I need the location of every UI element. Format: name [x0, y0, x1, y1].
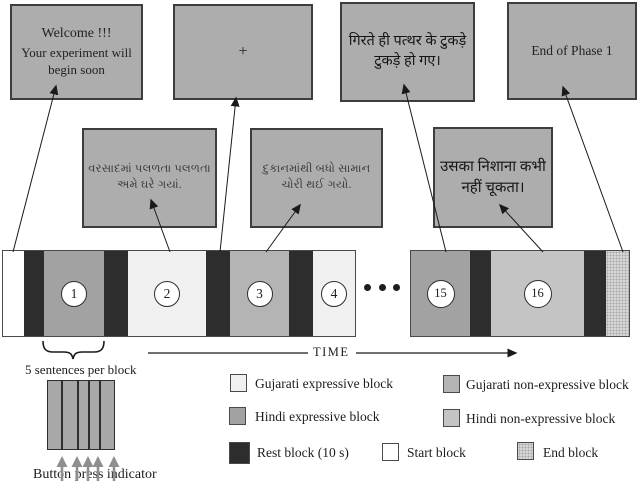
legend-label-gujarati-expressive: Gujarati expressive block: [255, 376, 393, 392]
timeline-bar-1: 1 2 3 4: [2, 250, 356, 337]
experiment-paradigm-figure: Welcome !!! Your experiment will begin s…: [0, 0, 640, 486]
block-2-gujarati-expressive: 2: [128, 251, 206, 336]
block-number-badge: 2: [154, 281, 180, 307]
start-block: [3, 251, 24, 336]
sentence-stripe: [48, 381, 61, 449]
legend-swatch-hindi-non-expressive: [443, 409, 460, 427]
fixation-cross: +: [238, 41, 247, 63]
block-3-gujarati-non-expressive: 3: [230, 251, 289, 336]
time-axis-label: TIME: [313, 345, 350, 360]
block-number-badge: 4: [321, 281, 347, 307]
sentence-stripe: [63, 381, 77, 449]
legend-swatch-rest-block: [229, 442, 250, 464]
block-number-badge: 15: [427, 280, 455, 308]
hindi-expressive-screen-box: गिरते ही पत्थर के टुकड़े टुकड़े हो गए।: [340, 2, 475, 102]
gujarati-non-expressive-line1: દુકાનમાંથી બધો સામાન: [263, 162, 371, 178]
legend-label-end-block: End block: [543, 445, 598, 461]
welcome-title: Welcome !!!: [42, 25, 112, 44]
sentence-stripe: [101, 381, 114, 449]
sentence-stripe: [90, 381, 99, 449]
sentences-per-block-label: 5 sentences per block: [25, 362, 137, 378]
legend-label-hindi-expressive: Hindi expressive block: [255, 409, 379, 425]
legend-swatch-hindi-expressive: [229, 407, 246, 425]
gujarati-expressive-screen-box: વરસાદમાં પલળતા પલળતા અમે ઘરે ગયાં.: [82, 128, 217, 228]
arrow-start-to-welcome: [13, 86, 56, 252]
gujarati-non-expressive-screen-box: દુકાનમાંથી બધો સામાન ચોરી થઈ ગયો.: [250, 128, 383, 228]
legend-label-gujarati-non-expressive: Gujarati non-expressive block: [466, 377, 629, 393]
legend-swatch-end-block: [517, 442, 534, 460]
timeline-bar-2: 15 16: [410, 250, 630, 337]
welcome-screen-box: Welcome !!! Your experiment will begin s…: [10, 4, 143, 100]
legend-swatch-gujarati-non-expressive: [443, 375, 460, 393]
end-block: [606, 251, 629, 336]
legend-label-start-block: Start block: [407, 445, 466, 461]
hindi-expressive-line2: टुकड़े हो गए।: [374, 52, 441, 72]
block-number-badge: 1: [61, 281, 87, 307]
rest-block: [206, 251, 230, 336]
arrow-rest-to-fixation: [220, 98, 236, 252]
hindi-non-expressive-line1: उसका निशाना कभी: [440, 157, 546, 177]
sentence-block-detail: [47, 380, 115, 450]
fixation-screen-box: +: [173, 4, 313, 100]
button-press-label: Button press indicator: [33, 467, 157, 483]
rest-block: [584, 251, 606, 336]
legend-label-rest-block: Rest block (10 s): [257, 445, 349, 461]
legend-swatch-start-block: [382, 443, 399, 461]
block-1-hindi-expressive: 1: [44, 251, 104, 336]
end-phase-label: End of Phase 1: [531, 42, 612, 60]
block-16-hindi-non-expressive: 16: [491, 251, 584, 336]
ellipsis-dots: [364, 284, 400, 291]
rest-block: [24, 251, 44, 336]
block-15-hindi-expressive: 15: [411, 251, 470, 336]
brace-five-sentences: [43, 341, 104, 359]
block-number-badge: 16: [524, 280, 552, 308]
gujarati-expressive-line1: વરસાદમાં પલળતા પલળતા: [88, 162, 211, 178]
rest-block: [289, 251, 313, 336]
welcome-text-line2: begin soon: [48, 61, 105, 79]
legend-swatch-gujarati-expressive: [230, 374, 247, 392]
welcome-text-line1: Your experiment will: [21, 44, 132, 62]
gujarati-non-expressive-line2: ચોરી થઈ ગયો.: [281, 178, 351, 194]
gujarati-expressive-line2: અમે ઘરે ગયાં.: [117, 178, 182, 194]
rest-block: [470, 251, 491, 336]
hindi-expressive-line1: गिरते ही पत्थर के टुकड़े: [349, 32, 467, 52]
legend-label-hindi-non-expressive: Hindi non-expressive block: [466, 411, 615, 427]
block-4-gujarati-expressive: 4: [313, 251, 355, 336]
end-phase-screen-box: End of Phase 1: [507, 2, 637, 100]
hindi-non-expressive-screen-box: उसका निशाना कभी नहीं चूकता।: [433, 127, 553, 228]
sentence-stripe: [79, 381, 88, 449]
block-number-badge: 3: [247, 281, 273, 307]
rest-block: [104, 251, 128, 336]
hindi-non-expressive-line2: नहीं चूकता।: [461, 178, 524, 198]
arrow-endblock-to-endphase: [563, 87, 623, 252]
